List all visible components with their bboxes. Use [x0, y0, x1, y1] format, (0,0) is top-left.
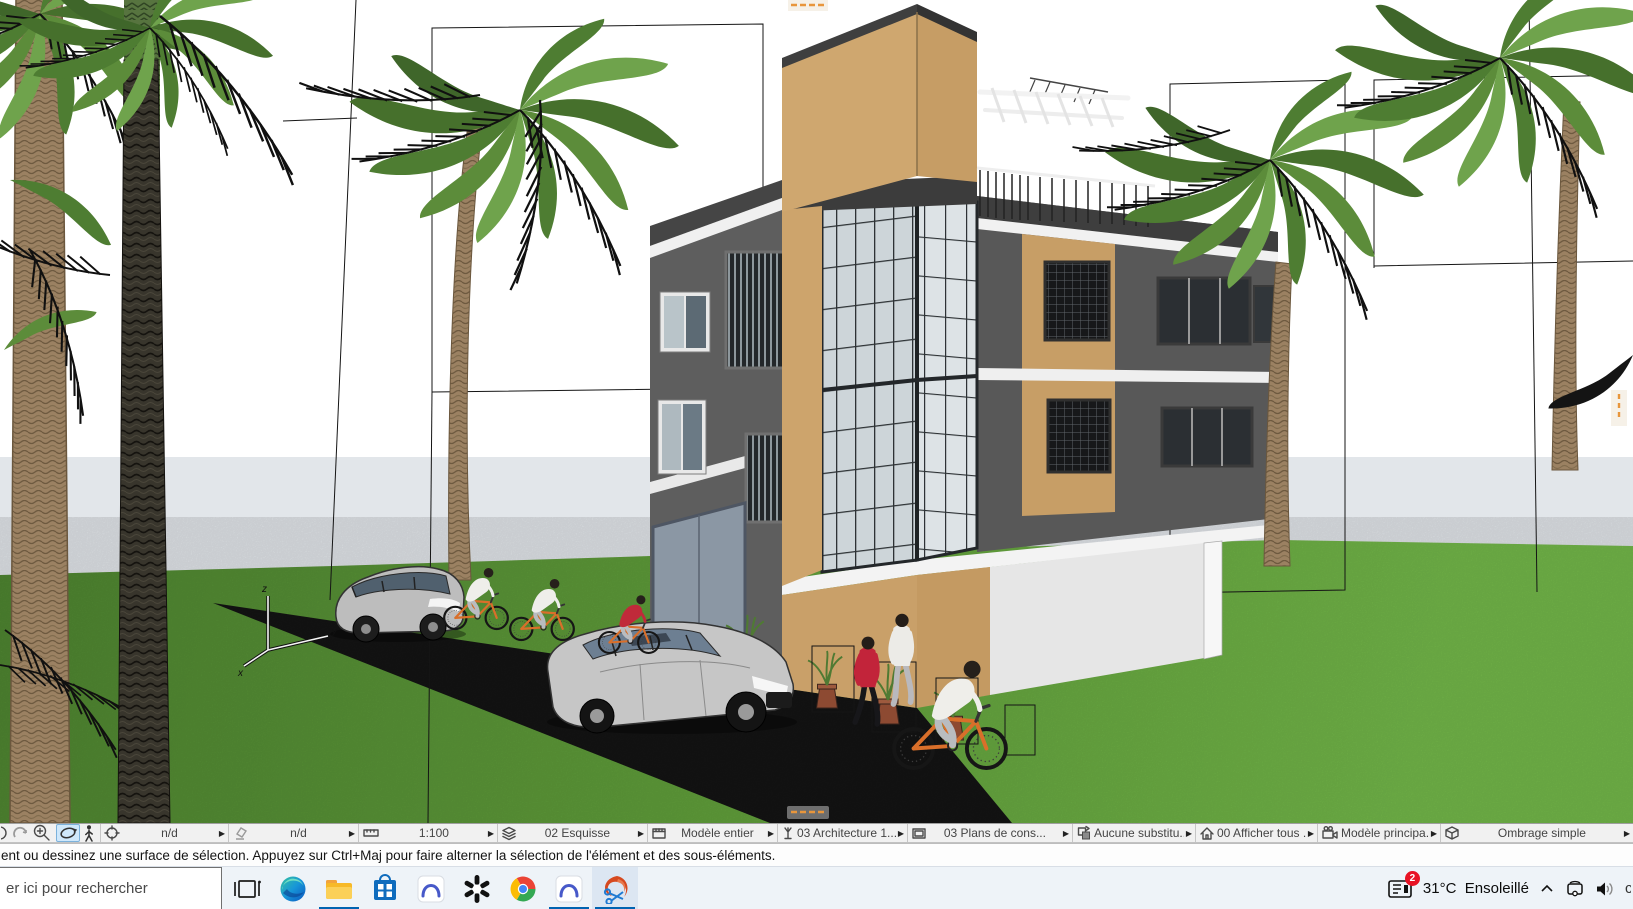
window-upper-right[interactable] [1158, 278, 1250, 344]
chevron-right-icon: ▶ [1063, 829, 1069, 838]
chevron-right-icon: ▶ [768, 829, 774, 838]
window-lower-right[interactable] [1162, 408, 1252, 466]
cube-icon [1444, 825, 1460, 841]
chevron-right-icon: ▶ [349, 829, 355, 838]
weather-label: Ensoleillé [1465, 880, 1529, 897]
segment-floor-plan-cut[interactable]: 03 Architecture 1... ▶ [777, 824, 907, 842]
segment-renovation-filter[interactable]: 00 Afficher tous ... ▶ [1195, 824, 1317, 842]
arc-app-icon [416, 874, 446, 904]
home-icon [1199, 825, 1215, 841]
orbit-icon [58, 825, 78, 841]
edge-button[interactable] [270, 867, 316, 909]
volume-button[interactable] [1595, 880, 1615, 898]
ruler-icon [362, 825, 380, 841]
plumb-icon [781, 825, 795, 841]
svg-text:y: y [331, 626, 338, 637]
frame-icon [911, 825, 927, 841]
notification-badge: 2 [1405, 871, 1420, 886]
chrome-button[interactable] [500, 867, 546, 909]
zoom-previous-button[interactable] [10, 824, 32, 842]
status-message: ent ou dessinez une surface de sélection… [1, 848, 775, 863]
segment-value: 1:100 [382, 826, 486, 840]
walk-icon [81, 824, 97, 842]
chrome-icon [508, 874, 538, 904]
segment-layer-combination[interactable]: 02 Esquisse ▶ [497, 824, 647, 842]
temperature-value: 31°C [1423, 880, 1457, 897]
app-arc-button[interactable] [408, 867, 454, 909]
file-explorer-icon [324, 874, 354, 904]
chevron-right-icon: ▶ [488, 829, 494, 838]
segment-value: 02 Esquisse [519, 826, 636, 840]
arc-app-icon [554, 874, 584, 904]
3d-scene: z y x [0, 0, 1633, 823]
speaker-icon [1595, 880, 1615, 898]
windows-taskbar: er ici pour rechercher [0, 866, 1633, 909]
system-tray: 2 31°C Ensoleillé [1387, 867, 1633, 909]
archicad-icon [600, 874, 630, 904]
zoom-in-button[interactable] [32, 824, 52, 842]
svg-text:z: z [261, 584, 267, 595]
zoom-previous-icon [11, 825, 31, 841]
segment-graphic-override[interactable]: Aucune substitu... ▶ [1072, 824, 1195, 842]
chevron-right-icon: ▶ [638, 829, 644, 838]
segment-value: 00 Afficher tous ... [1217, 826, 1306, 840]
segment-value: Aucune substitu... [1094, 826, 1184, 840]
zoom-in-icon [33, 824, 51, 842]
section-marker-right[interactable] [1611, 390, 1627, 426]
model-view-icon [651, 825, 667, 841]
chatgpt-icon [462, 874, 492, 904]
weather-status[interactable]: 31°C Ensoleillé [1423, 880, 1529, 897]
explore-button[interactable] [80, 824, 98, 842]
taskbar-apps [224, 867, 638, 909]
chevron-right-icon: ▶ [1308, 829, 1314, 838]
chevron-right-icon: ▶ [1624, 829, 1630, 838]
segment-override[interactable]: n/d ▶ [228, 824, 358, 842]
segment-value: 03 Architecture 1... [797, 826, 896, 840]
microsoft-store-button[interactable] [362, 867, 408, 909]
file-explorer-button[interactable] [316, 867, 362, 909]
segment-pen-set[interactable]: 03 Plans de cons... ▶ [907, 824, 1072, 842]
segment-value: Ombrage simple [1462, 826, 1622, 840]
section-marker-top[interactable] [788, 0, 828, 11]
fit-in-window-icon [104, 825, 120, 841]
segment-scale[interactable]: 1:100 ▶ [358, 824, 497, 842]
segment-value: n/d [122, 826, 217, 840]
window-grated-upper[interactable] [1045, 262, 1109, 340]
task-view-icon [233, 875, 261, 903]
edge-icon [278, 874, 308, 904]
taskbar-search-input[interactable]: er ici pour rechercher [0, 867, 222, 909]
cast-icon [1565, 880, 1585, 898]
store-icon [370, 874, 400, 904]
segment-value: n/d [250, 826, 347, 840]
3d-viewport[interactable]: z y x [0, 0, 1633, 823]
pilaster [1204, 541, 1222, 659]
archicad-button[interactable] [592, 867, 638, 909]
status-message-bar: ent ou dessinez une surface de sélection… [0, 843, 1633, 866]
segment-model-view-options[interactable]: Modèle entier ▶ [647, 824, 777, 842]
layers-icon [501, 825, 517, 841]
chevron-right-icon: ▶ [898, 829, 904, 838]
segment-value: 03 Plans de cons... [929, 826, 1061, 840]
view-tools [0, 824, 100, 842]
chevron-right-icon: ▶ [1431, 829, 1437, 838]
segment-fit-in-window[interactable]: n/d ▶ [100, 824, 228, 842]
orbit-button[interactable] [56, 824, 80, 842]
substitute-icon [1076, 825, 1092, 841]
svg-text:x: x [237, 668, 244, 679]
segment-render-style[interactable]: Ombrage simple ▶ [1440, 824, 1633, 842]
chevron-right-icon: ▶ [219, 829, 225, 838]
segment-camera[interactable]: Modèle principa... ▶ [1317, 824, 1440, 842]
archicad-window: z y x [0, 0, 1633, 909]
segment-value: Modèle entier [669, 826, 766, 840]
news-widget-button[interactable]: 2 [1387, 878, 1413, 900]
chevron-right-icon: ▶ [1186, 829, 1192, 838]
chatgpt-button[interactable] [454, 867, 500, 909]
segment-value: Modèle principa... [1341, 826, 1429, 840]
task-view-button[interactable] [224, 867, 270, 909]
chevron-up-icon [1539, 882, 1555, 896]
window-grated-lower[interactable] [1048, 400, 1110, 472]
partial-tool-icon[interactable] [0, 824, 10, 842]
override-icon [232, 825, 248, 841]
section-marker-bottom[interactable] [787, 806, 829, 819]
clipped-tray-glyph: c [1625, 880, 1631, 897]
camera-icon [1321, 825, 1339, 841]
search-placeholder: er ici pour rechercher [6, 880, 148, 897]
quick-options-bar: n/d ▶ n/d ▶ 1:100 ▶ 02 Esquisse ▶ [0, 823, 1633, 843]
app-arc-2-button[interactable] [546, 867, 592, 909]
cast-device-button[interactable] [1565, 880, 1585, 898]
tray-overflow-button[interactable] [1539, 882, 1555, 896]
window-louver-upper[interactable] [726, 252, 790, 368]
